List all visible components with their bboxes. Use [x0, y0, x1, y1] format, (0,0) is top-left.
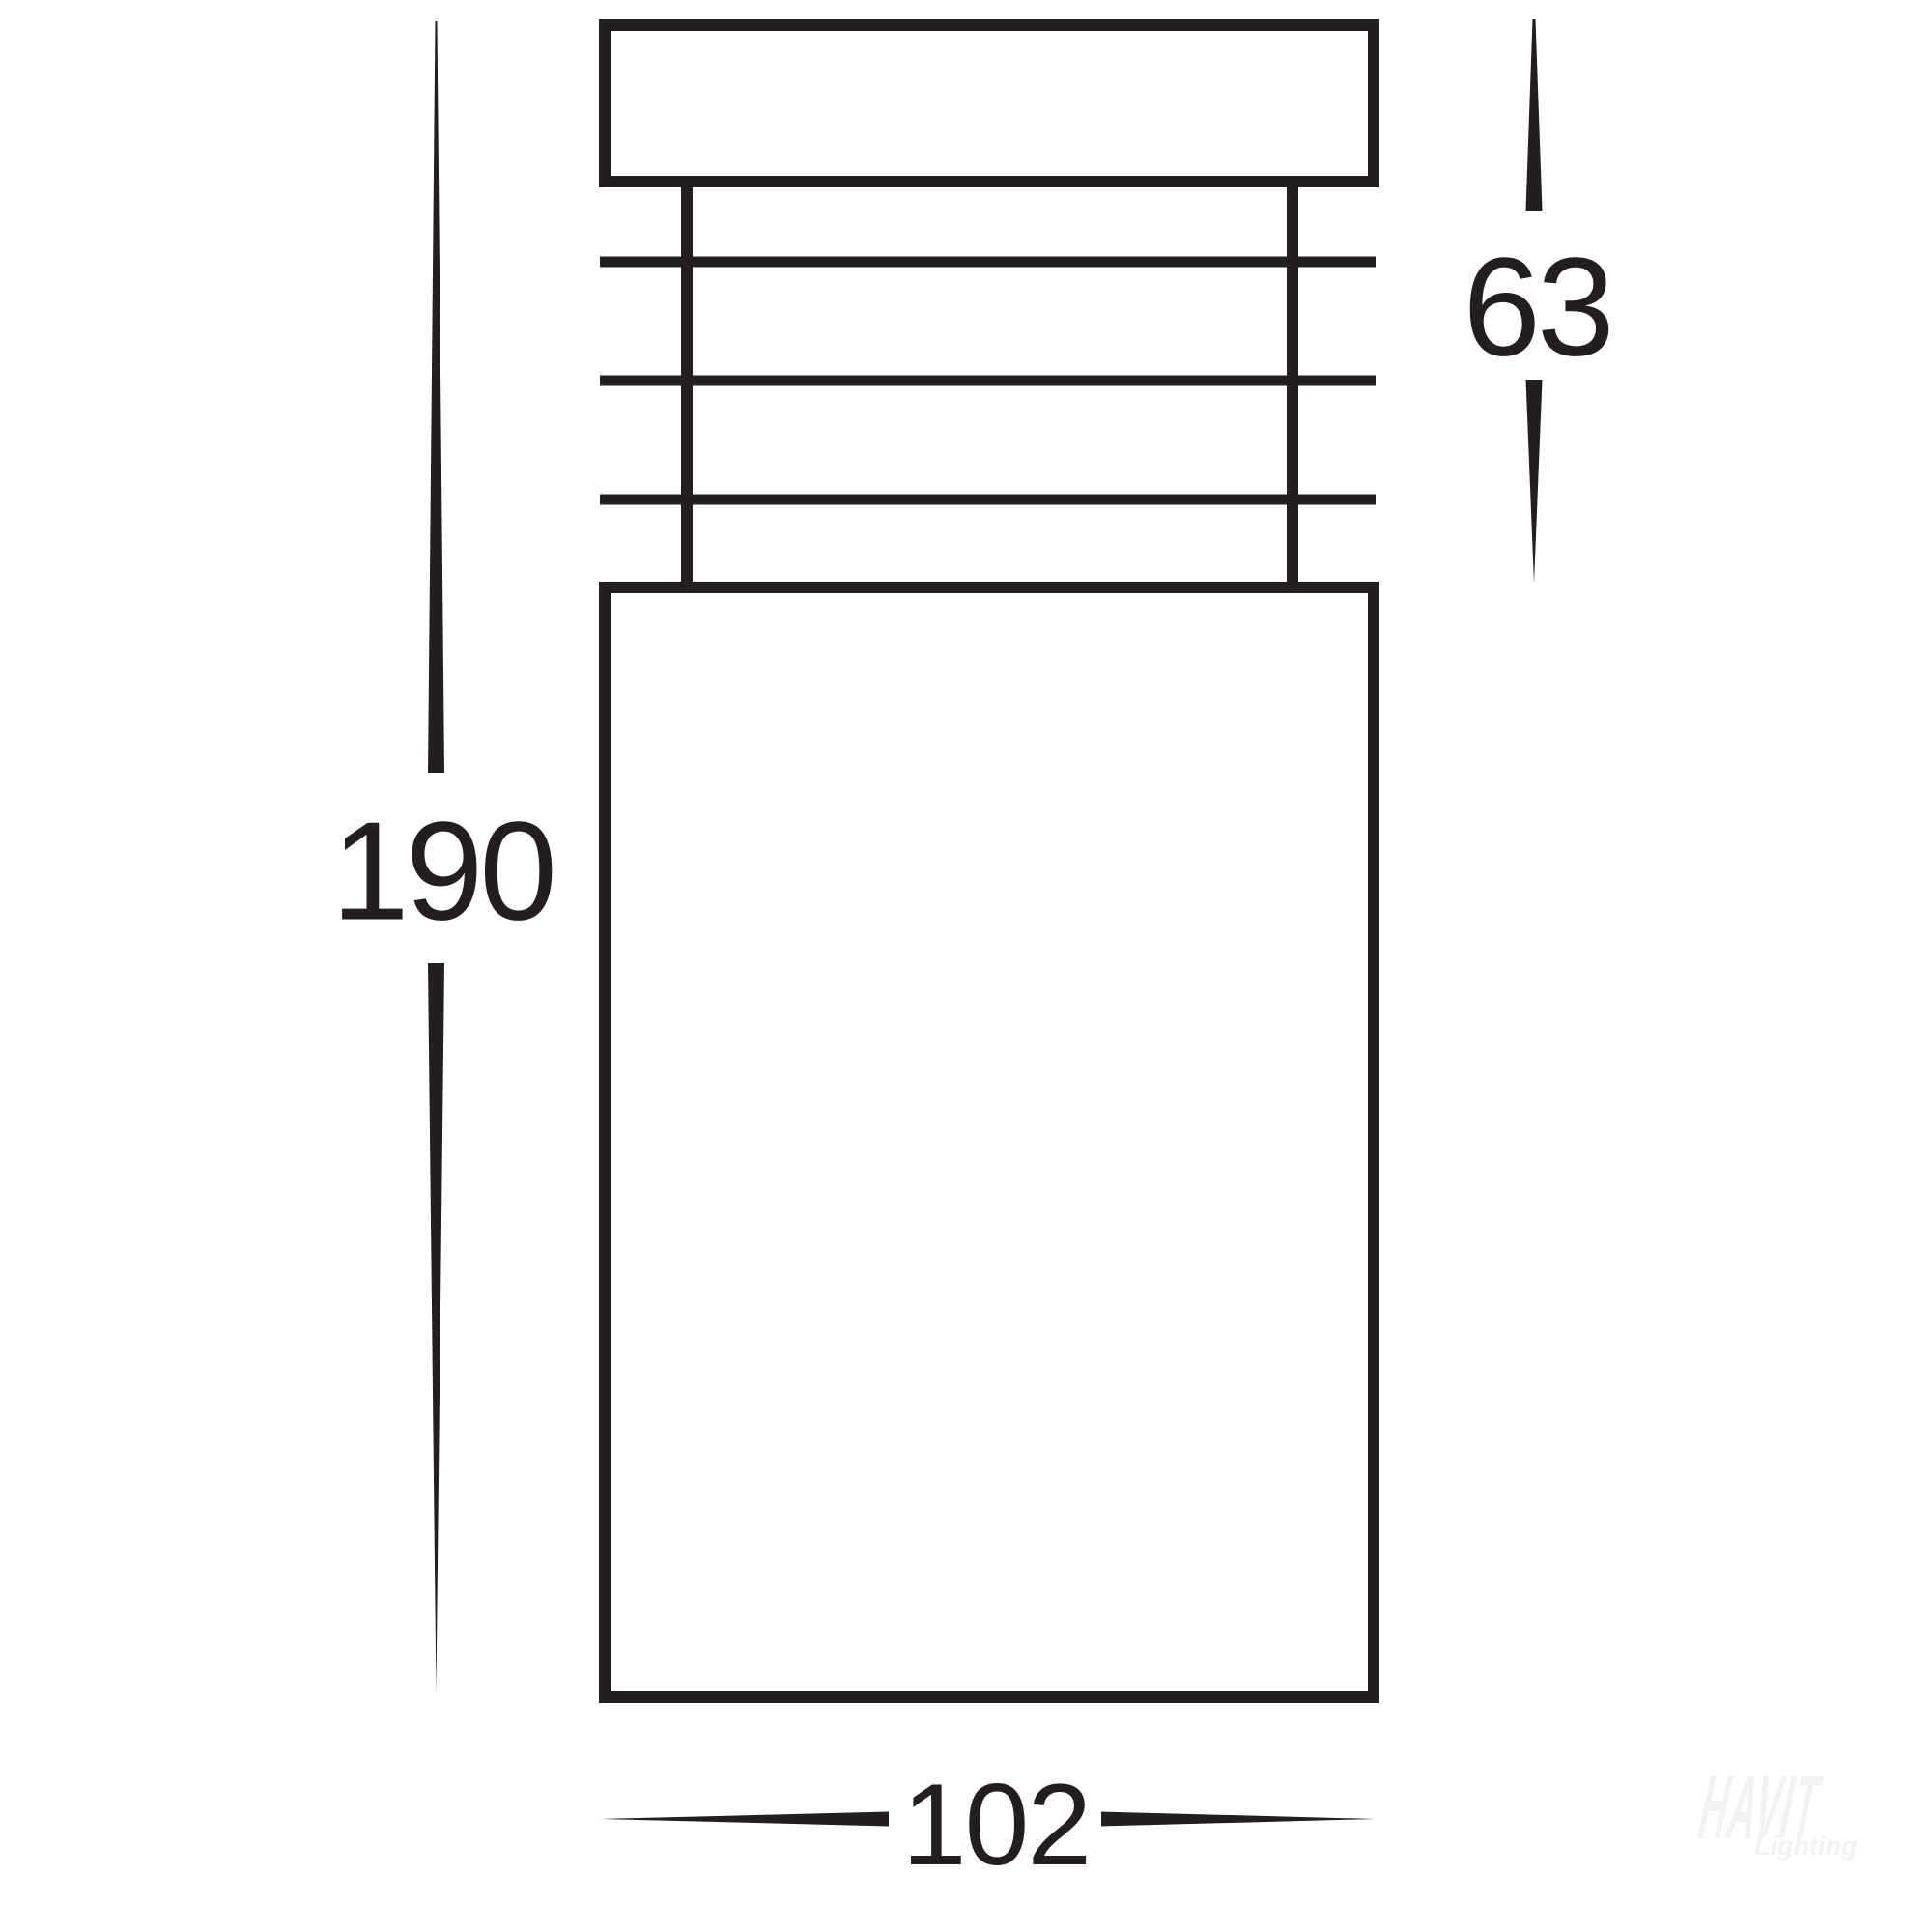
height-dim-line-upper: [428, 21, 444, 773]
width-dim-line-right: [1101, 1812, 1376, 1827]
head-dim-line-upper: [1526, 19, 1543, 211]
height-dim-line-lower: [428, 963, 444, 1692]
cap-outline: [605, 25, 1374, 182]
technical-drawing-page: 190 63 102 HAVIT Lighting: [0, 0, 1932, 1932]
width-dim-line-left: [601, 1812, 889, 1827]
dimension-label-width: 102: [902, 1767, 1090, 1883]
dimension-label-head-height: 63: [1463, 238, 1610, 378]
head-dim-line-lower: [1526, 380, 1543, 583]
body-outline: [605, 587, 1374, 1697]
dimension-label-overall-height: 190: [331, 802, 554, 942]
bollard-light-drawing: [0, 0, 1932, 1932]
